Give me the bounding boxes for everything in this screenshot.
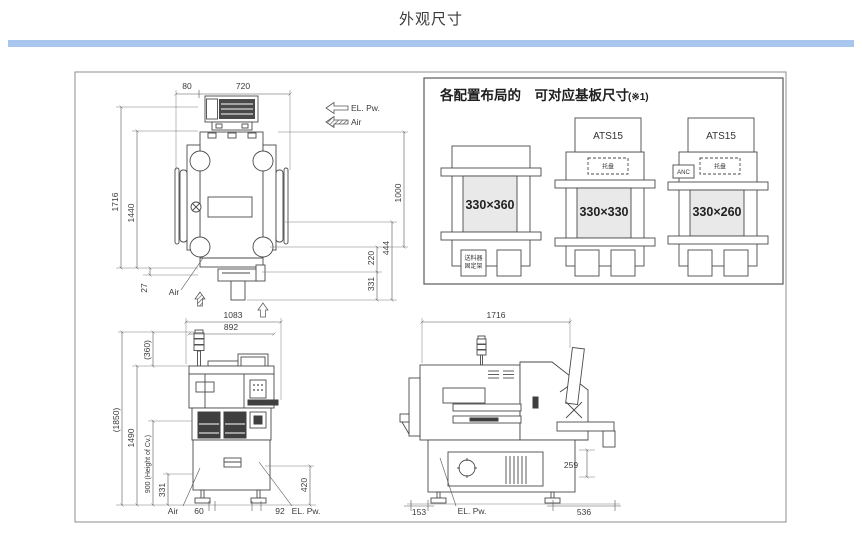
dim-259: 259 bbox=[564, 460, 578, 470]
feeder-label-2: 固定架 bbox=[464, 262, 482, 270]
ats-label-3: ATS15 bbox=[706, 131, 736, 142]
feeder-label-1: 送料器 bbox=[464, 254, 482, 262]
config-panel-note: (※1) bbox=[628, 92, 649, 103]
front-elpw-label: EL. Pw. bbox=[292, 506, 321, 516]
dim-220: 220 bbox=[366, 251, 376, 265]
dim-1000: 1000 bbox=[393, 183, 403, 202]
dim-444: 444 bbox=[381, 241, 391, 255]
dim-331: 331 bbox=[366, 277, 376, 291]
config-panel: 各配置布局的 可对应基板尺寸 (※1) 330×360 送料器 固定架 ATS1… bbox=[424, 78, 783, 284]
ats-label-2: ATS15 bbox=[593, 131, 623, 142]
tray-label-3: 托盘 bbox=[714, 163, 726, 171]
dim-1440: 1440 bbox=[126, 203, 136, 222]
tray-label-2: 托盘 bbox=[602, 163, 614, 171]
dim-420: 420 bbox=[299, 478, 309, 492]
dim-60: 60 bbox=[194, 506, 204, 516]
side-elpw-label: EL. Pw. bbox=[458, 506, 487, 516]
dim-331-front: 331 bbox=[157, 483, 167, 497]
dim-1083: 1083 bbox=[224, 310, 243, 320]
air-label: Air bbox=[169, 287, 180, 297]
dim-1850: (1850) bbox=[111, 408, 121, 433]
dim-92: 92 bbox=[275, 506, 285, 516]
dim-1490: 1490 bbox=[126, 428, 136, 447]
dim-360: (360) bbox=[142, 340, 152, 360]
anc-label: ANC bbox=[677, 170, 690, 176]
dim-80: 80 bbox=[182, 81, 192, 91]
board-size-1: 330×360 bbox=[465, 198, 514, 212]
page: 外观尺寸 bbox=[0, 0, 862, 535]
legend-elpw: EL. Pw. bbox=[351, 103, 380, 113]
legend-air: Air bbox=[351, 117, 362, 127]
dim-1716: 1716 bbox=[110, 192, 120, 211]
dim-900-cv: 900 (Height of Cv.) bbox=[145, 435, 152, 493]
dim-153: 153 bbox=[412, 507, 426, 517]
dim-720: 720 bbox=[236, 81, 250, 91]
dim-892: 892 bbox=[224, 322, 238, 332]
dimension-diagram: 80 720 1716 1440 27 1000 444 2 bbox=[0, 0, 862, 535]
front-air-label: Air bbox=[168, 506, 179, 516]
config-panel-title: 各配置布局的 可对应基板尺寸 bbox=[439, 87, 629, 103]
board-size-2: 330×330 bbox=[579, 205, 628, 219]
board-size-3: 330×260 bbox=[692, 205, 741, 219]
config-1: 330×360 送料器 固定架 bbox=[441, 146, 541, 276]
dim-1716-side: 1716 bbox=[487, 310, 506, 320]
dim-27: 27 bbox=[139, 283, 149, 293]
dim-536: 536 bbox=[577, 507, 591, 517]
